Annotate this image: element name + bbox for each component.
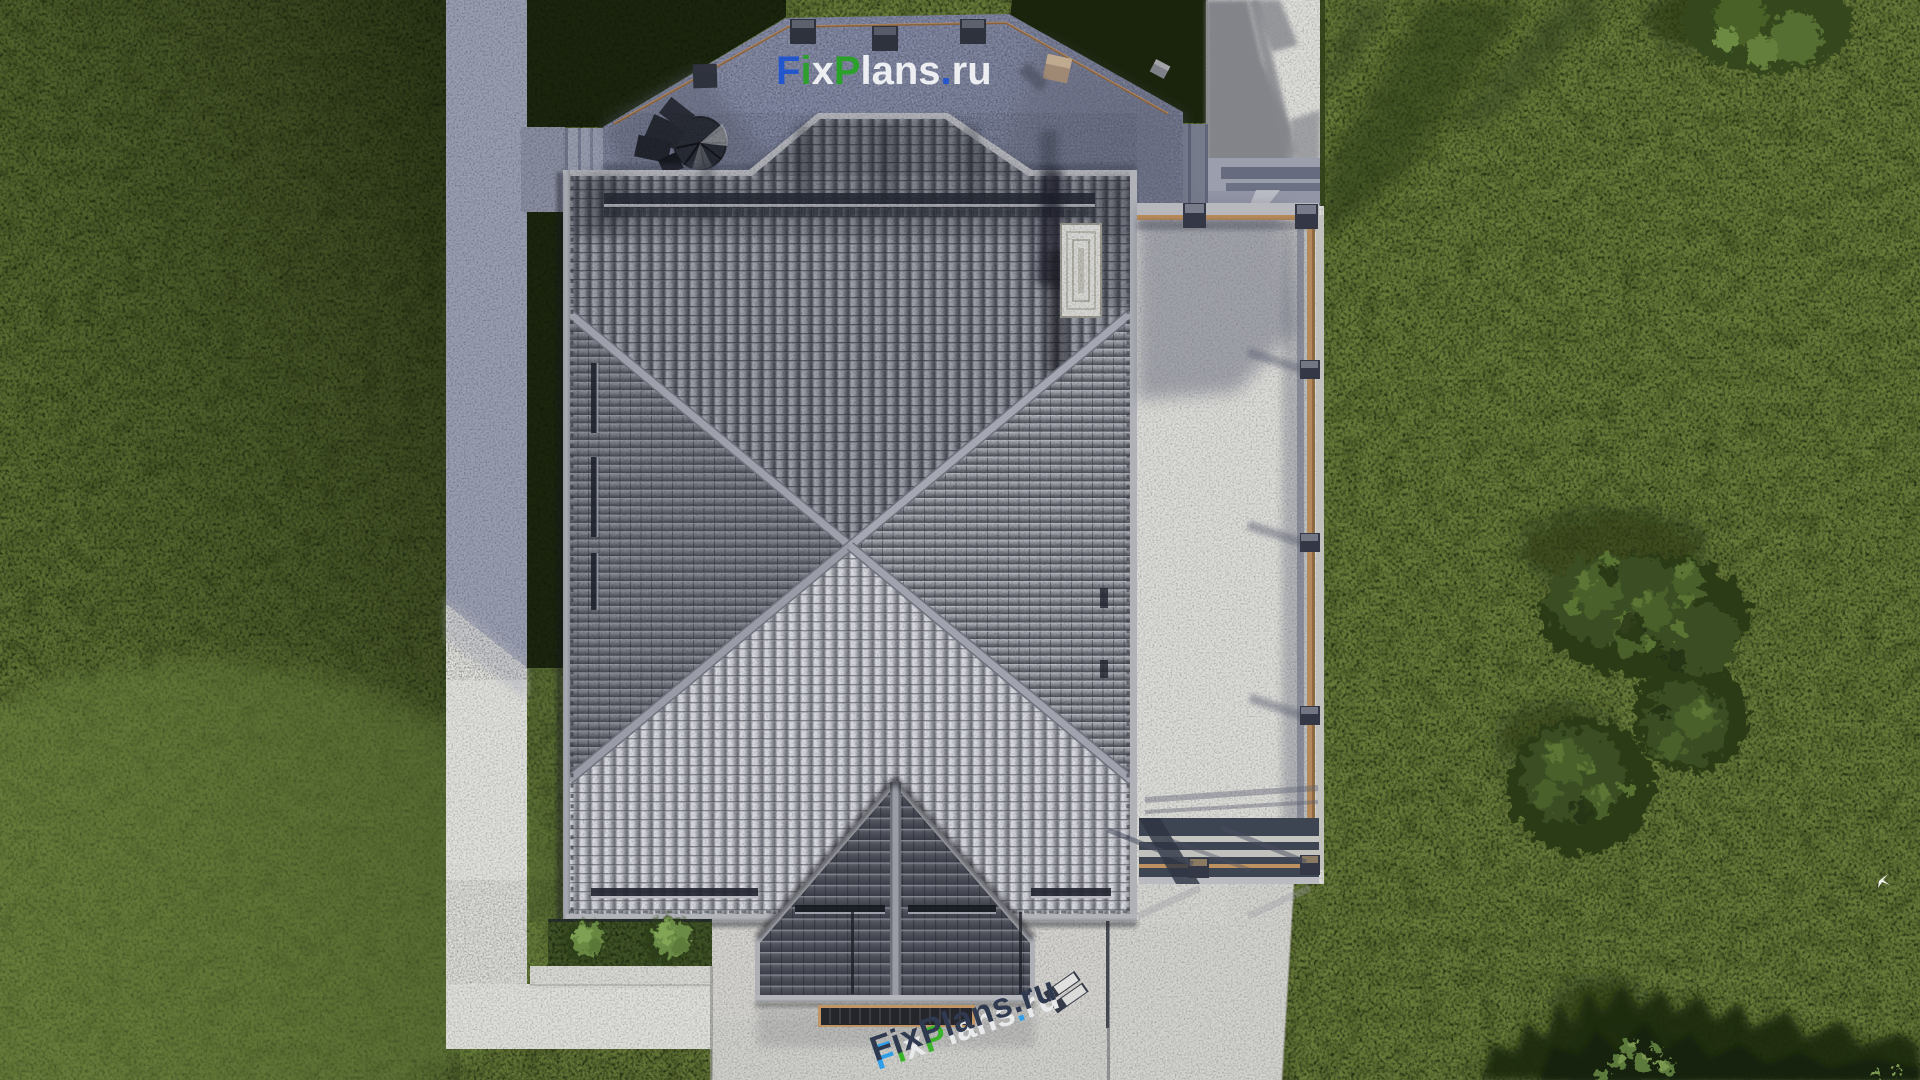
svg-text:FixPlans.ru: FixPlans.ru [776, 49, 992, 93]
